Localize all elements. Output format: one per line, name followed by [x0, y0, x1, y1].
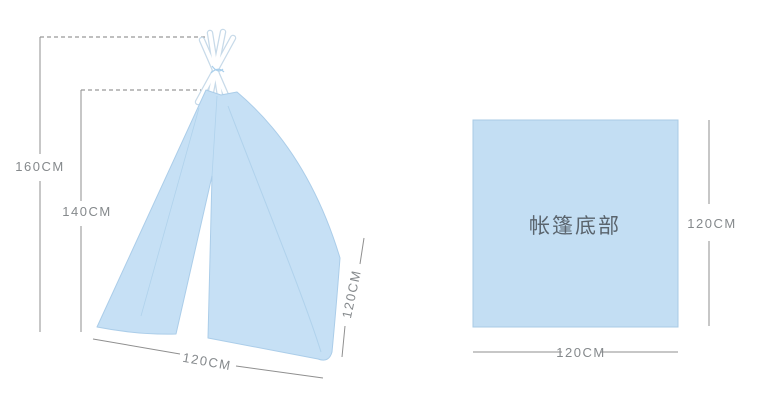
tent-poles — [198, 32, 233, 102]
diagram-canvas: 160CM 140CM 120CM 120CM 帐篷底部 120CM 120CM — [0, 0, 758, 404]
tent-total-height-label: 160CM — [15, 159, 64, 174]
base-side-height-label: 120CM — [687, 216, 736, 231]
tent-fabric — [97, 90, 340, 360]
tent-base-figure: 帐篷底部 120CM 120CM — [473, 120, 737, 360]
tent-fabric-height-label: 140CM — [62, 204, 111, 219]
base-bottom-width-label: 120CM — [556, 345, 605, 360]
tent-base-title: 帐篷底部 — [529, 215, 621, 238]
tent-figure: 160CM 140CM 120CM 120CM — [15, 32, 364, 378]
tent-base-width-label: 120CM — [181, 350, 232, 373]
tent-side-depth-label: 120CM — [339, 268, 364, 319]
tent-dimension-diagram: 160CM 140CM 120CM 120CM 帐篷底部 120CM 120CM — [0, 0, 758, 404]
